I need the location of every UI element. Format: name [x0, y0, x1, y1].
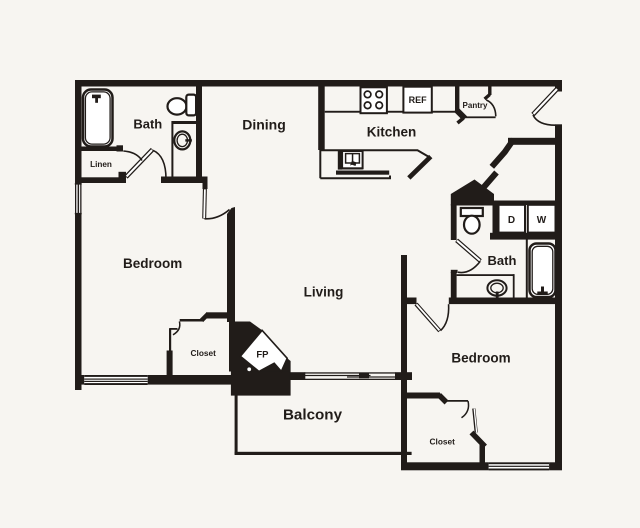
svg-text:Bath: Bath — [133, 117, 162, 132]
svg-text:Bedroom: Bedroom — [123, 256, 182, 271]
svg-text:D: D — [508, 215, 515, 226]
svg-text:Kitchen: Kitchen — [367, 125, 417, 140]
svg-text:Linen: Linen — [90, 160, 112, 169]
svg-text:Closet: Closet — [430, 437, 456, 447]
svg-text:Dining: Dining — [242, 117, 286, 133]
svg-text:Balcony: Balcony — [283, 407, 343, 424]
svg-text:REF: REF — [409, 95, 428, 105]
svg-text:W: W — [537, 215, 547, 226]
svg-text:Bath: Bath — [488, 253, 517, 268]
svg-text:Bedroom: Bedroom — [451, 351, 510, 366]
svg-text:Living: Living — [304, 285, 344, 300]
svg-text:FP: FP — [256, 350, 269, 361]
svg-text:Pantry: Pantry — [463, 101, 488, 110]
svg-text:Closet: Closet — [191, 348, 217, 358]
